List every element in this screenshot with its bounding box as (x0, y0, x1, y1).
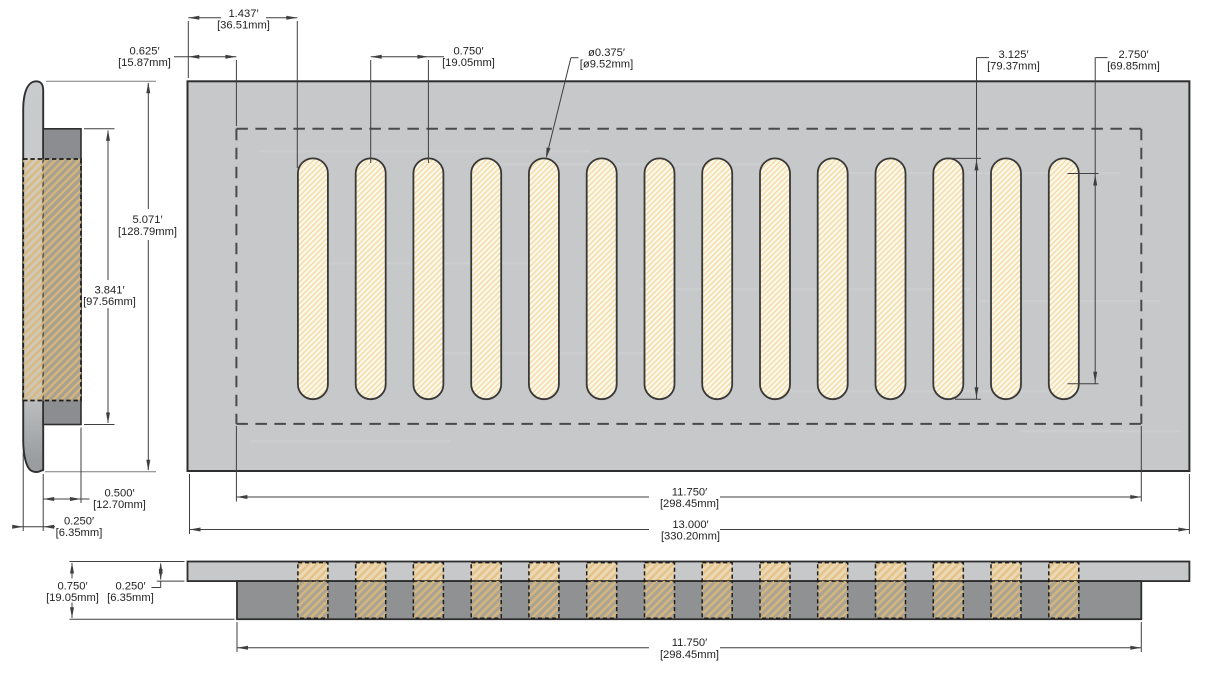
svg-text:[6.35mm]: [6.35mm] (56, 527, 103, 539)
svg-text:0.750′: 0.750′ (57, 581, 87, 593)
svg-text:0.750′: 0.750′ (453, 45, 483, 57)
svg-text:[97.56mm]: [97.56mm] (83, 296, 136, 308)
svg-text:1.437′: 1.437′ (228, 8, 258, 20)
svg-text:0.250′: 0.250′ (64, 515, 94, 527)
svg-text:[330.20mm]: [330.20mm] (661, 531, 720, 543)
svg-text:11.750′: 11.750′ (672, 487, 708, 499)
svg-text:0.625′: 0.625′ (129, 45, 159, 57)
svg-text:[69.85mm]: [69.85mm] (1107, 61, 1160, 73)
svg-text:5.071′: 5.071′ (132, 214, 162, 226)
svg-text:[19.05mm]: [19.05mm] (46, 592, 99, 604)
svg-text:[298.45mm]: [298.45mm] (660, 649, 719, 661)
svg-text:[79.37mm]: [79.37mm] (987, 61, 1040, 73)
svg-text:[19.05mm]: [19.05mm] (442, 57, 495, 69)
svg-text:[298.45mm]: [298.45mm] (660, 498, 719, 510)
svg-text:[36.51mm]: [36.51mm] (217, 19, 270, 31)
svg-text:3.841′: 3.841′ (94, 284, 124, 296)
svg-text:[128.79mm]: [128.79mm] (118, 226, 177, 238)
svg-text:3.125′: 3.125′ (998, 49, 1028, 61)
svg-text:ø0.375′: ø0.375′ (588, 47, 625, 59)
svg-text:0.250′: 0.250′ (115, 581, 145, 593)
svg-text:[ø9.52mm]: [ø9.52mm] (580, 59, 633, 71)
svg-text:13.000′: 13.000′ (672, 519, 708, 531)
svg-text:0.500′: 0.500′ (104, 488, 134, 500)
svg-text:[15.87mm]: [15.87mm] (118, 57, 171, 69)
svg-text:2.750′: 2.750′ (1118, 49, 1148, 61)
svg-text:11.750′: 11.750′ (672, 637, 708, 649)
svg-text:[6.35mm]: [6.35mm] (107, 592, 154, 604)
svg-text:[12.70mm]: [12.70mm] (93, 499, 146, 511)
